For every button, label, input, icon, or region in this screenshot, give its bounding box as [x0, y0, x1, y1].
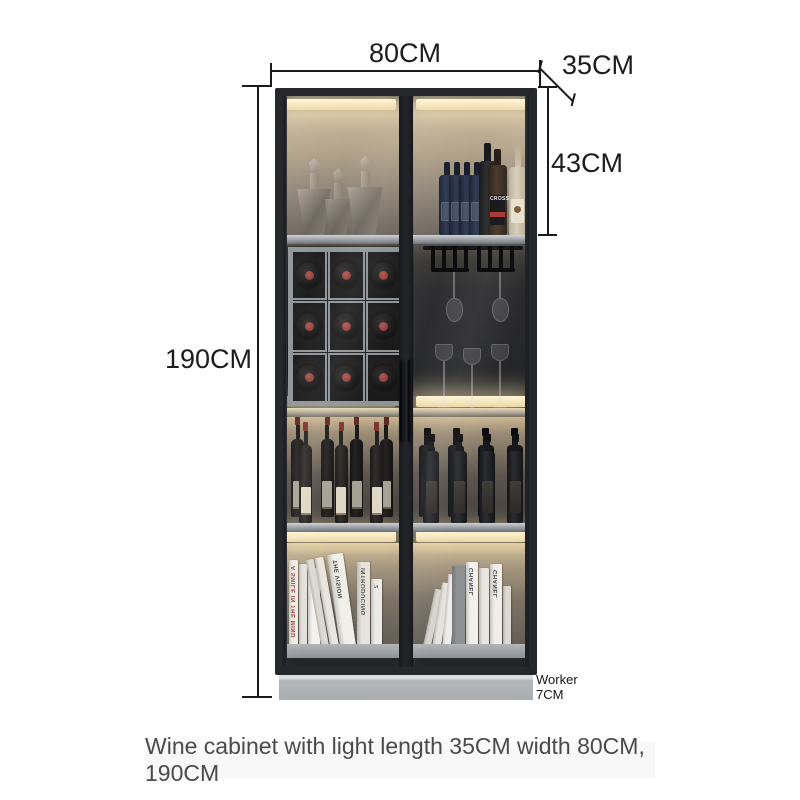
- book-spine: A SMILE IN THE MIND: [289, 560, 298, 646]
- dark-liquor-bottle: [507, 434, 523, 523]
- bottle-neck: [484, 442, 490, 451]
- dark-bottle-row-front: [423, 434, 523, 523]
- lattice-cell: [368, 252, 400, 298]
- bottle-label: [511, 199, 524, 223]
- led-strip-low-left: [286, 531, 396, 542]
- glass-bowl: [491, 344, 509, 361]
- bottle-neck: [339, 431, 343, 445]
- wine-bottle-cap: [342, 373, 351, 382]
- glass-stem: [453, 272, 455, 298]
- wine-bottle-cap: [305, 322, 314, 331]
- red-wine-bottle: [370, 422, 383, 523]
- wine-bottle-row-front: [299, 422, 383, 523]
- dim-width-line: [270, 70, 540, 72]
- stemware-rack-hook: [488, 246, 492, 270]
- bottle-label-accent: [490, 212, 505, 217]
- decanter-stopper: [309, 158, 319, 173]
- bottle-neck: [515, 145, 521, 167]
- plinth: [279, 675, 533, 700]
- dim-topsection-tick-bottom: [538, 234, 557, 236]
- caption-bar: Wine cabinet with light length 35CM widt…: [145, 742, 655, 778]
- stemware-rack-bar: [423, 246, 523, 250]
- dim-height-tick-top: [242, 85, 272, 87]
- bottle-neck: [512, 442, 518, 451]
- bottle-cap: [384, 416, 389, 425]
- bottle-neck: [304, 431, 308, 445]
- glass-bowl: [446, 298, 463, 322]
- bottle-label: [454, 481, 465, 513]
- book-spine: [503, 586, 511, 646]
- lattice-cell: [368, 355, 400, 401]
- lattice-cell: [330, 355, 362, 401]
- bottle-body: [451, 451, 467, 523]
- door-stile-left: [283, 96, 287, 667]
- stemware-rack-hook: [477, 246, 481, 270]
- bottle-cap: [303, 422, 308, 431]
- bottle-body: [299, 445, 312, 523]
- decanter-stopper: [333, 168, 343, 183]
- dark-liquor-bottle: [479, 434, 495, 523]
- lattice-cell: [368, 303, 400, 349]
- bottle-label: [510, 481, 521, 513]
- glass-stem: [499, 361, 501, 407]
- glass-bowl: [492, 298, 509, 322]
- book-title: CHANEL: [469, 568, 475, 596]
- bottle-label: [482, 481, 493, 513]
- bottle-body: [423, 451, 439, 523]
- decanter-neck: [361, 171, 370, 187]
- bottle-cap: [512, 434, 519, 442]
- wine-rack-lattice: [288, 247, 405, 406]
- wine-bottle-cap: [342, 322, 351, 331]
- wine-bottle-end: [371, 365, 397, 391]
- wine-bottle-end: [333, 313, 359, 339]
- book-spine: [299, 564, 307, 646]
- wine-bottle-cap: [342, 271, 351, 280]
- led-strip-low-right: [416, 531, 526, 542]
- glass-bowl: [463, 348, 481, 365]
- dark-liquor-bottle: [423, 434, 439, 523]
- glass-stem: [471, 365, 473, 411]
- wine-bottle-cap: [379, 271, 388, 280]
- dim-topsection-line: [547, 86, 549, 235]
- standing-wine-glass: [463, 348, 481, 414]
- stemware-rack-hook: [464, 246, 468, 270]
- decanter-neck: [310, 173, 319, 189]
- liquor-bottle-cream: [509, 145, 526, 235]
- lattice-cell: [330, 252, 362, 298]
- book-title: 2: [374, 585, 380, 589]
- wine-bottle-end: [296, 313, 322, 339]
- led-strip-top-left: [286, 99, 396, 110]
- wine-bottle-end: [371, 313, 397, 339]
- dim-topsection-label: 43CM: [551, 148, 623, 179]
- bottle-neck: [494, 149, 501, 165]
- decanter: [345, 156, 385, 235]
- bottle-body: [479, 451, 495, 523]
- bottle-label: [372, 487, 382, 515]
- wine-cabinet: CROSS: [275, 88, 537, 675]
- left-door-handle[interactable]: [400, 360, 404, 442]
- wine-bottle-end: [371, 262, 397, 288]
- stemware-rack-bar: [477, 268, 515, 272]
- plinth-label: Worker 7CM: [536, 672, 578, 702]
- bottle-label: CROSS: [490, 195, 505, 225]
- book-title: INTRODUCING: [361, 568, 367, 616]
- stemware-rack-bar: [431, 268, 469, 272]
- bottle-body: [370, 445, 383, 523]
- book-spine: 2: [371, 579, 382, 646]
- door-stile-right: [525, 96, 529, 667]
- standing-wine-glass: [491, 344, 509, 410]
- dark-liquor-bottle: [451, 434, 467, 523]
- glass-bowl: [435, 344, 453, 361]
- bottle-body: [507, 451, 523, 523]
- bottle-cap: [339, 422, 344, 431]
- hanging-wine-glass: [492, 272, 507, 322]
- bottle-body: [335, 445, 348, 523]
- wine-bottle-end: [333, 262, 359, 288]
- bottle-label: [336, 487, 346, 515]
- dim-height-tick-bottom: [242, 696, 272, 698]
- book-spine: CHANEL: [490, 564, 502, 646]
- lattice-cell: [293, 252, 325, 298]
- bottle-cap: [374, 422, 379, 431]
- plinth-label-line2: 7CM: [536, 687, 563, 702]
- red-wine-bottle: [299, 422, 312, 523]
- stemware-rack-hook: [510, 246, 514, 270]
- decanter-body: [345, 187, 385, 235]
- caption-text: Wine cabinet with light length 35CM widt…: [145, 733, 655, 787]
- dim-width-label: 80CM: [270, 38, 540, 69]
- stemware-rack-hook: [442, 246, 446, 270]
- wine-bottle-cap: [305, 373, 314, 382]
- decanter-stopper: [360, 156, 370, 171]
- bottle-neck: [456, 442, 462, 451]
- book-spine: CHANEL: [466, 562, 478, 646]
- bottle-cap: [456, 434, 463, 442]
- wine-bottle-end: [296, 365, 322, 391]
- glass-stem: [443, 361, 445, 407]
- book-spine: [452, 566, 465, 646]
- lattice-cell: [293, 303, 325, 349]
- product-dimension-image: 80CM 35CM 43CM 190CM: [0, 0, 800, 800]
- cabinet-interior: CROSS: [283, 96, 529, 667]
- stemware-rack-hook: [453, 246, 457, 270]
- hanging-wine-glass: [446, 272, 461, 322]
- wine-bottle-cap: [379, 322, 388, 331]
- red-wine-bottle: [335, 422, 348, 523]
- bottle-label: [426, 481, 437, 513]
- lattice-cell: [293, 355, 325, 401]
- liquor-bottle-row: CROSS: [439, 143, 529, 235]
- stemware-rack-hook: [431, 246, 435, 270]
- bottle-label: [301, 487, 311, 515]
- liquor-bottle-cross: CROSS: [488, 149, 507, 235]
- wine-bottle-cap: [305, 271, 314, 280]
- dim-height-line: [257, 85, 259, 697]
- bottle-label-mark: [514, 206, 521, 213]
- standing-wine-glass: [435, 344, 453, 410]
- bottle-neck: [384, 425, 388, 439]
- glass-stem: [499, 272, 501, 298]
- decanter-neck: [334, 183, 343, 199]
- wine-bottle-end: [333, 365, 359, 391]
- bottle-body: [509, 167, 526, 235]
- book-title: CHANEL: [493, 570, 499, 598]
- bottle-body: CROSS: [488, 165, 507, 235]
- plinth-label-line1: Worker: [536, 672, 578, 687]
- wine-bottle-end: [296, 262, 322, 288]
- bottle-cap: [428, 434, 435, 442]
- dim-height-label: 190CM: [160, 344, 252, 375]
- led-strip-top-right: [416, 99, 526, 110]
- lattice-cell: [330, 303, 362, 349]
- bottle-neck: [375, 431, 379, 445]
- book-title: THE VISION: [333, 559, 344, 598]
- dim-depth-label: 35CM: [562, 50, 634, 81]
- book-title: A SMILE IN THE MIND: [291, 566, 297, 638]
- book-spine: INTRODUCING: [357, 562, 370, 646]
- wine-bottle-cap: [379, 373, 388, 382]
- dim-depth-tick-2: [571, 93, 576, 106]
- dim-topsection-tick-top: [538, 86, 557, 88]
- book-row-right: CHANELCHANEL: [423, 562, 525, 646]
- stemware-rack-hook: [499, 246, 503, 270]
- book-spine: [479, 568, 489, 646]
- bottle-neck: [428, 442, 434, 451]
- right-door-handle[interactable]: [408, 360, 412, 442]
- bottle-cap: [484, 434, 491, 442]
- book-row-left: A SMILE IN THE MINDloopTHE VISIONINTRODU…: [289, 553, 399, 646]
